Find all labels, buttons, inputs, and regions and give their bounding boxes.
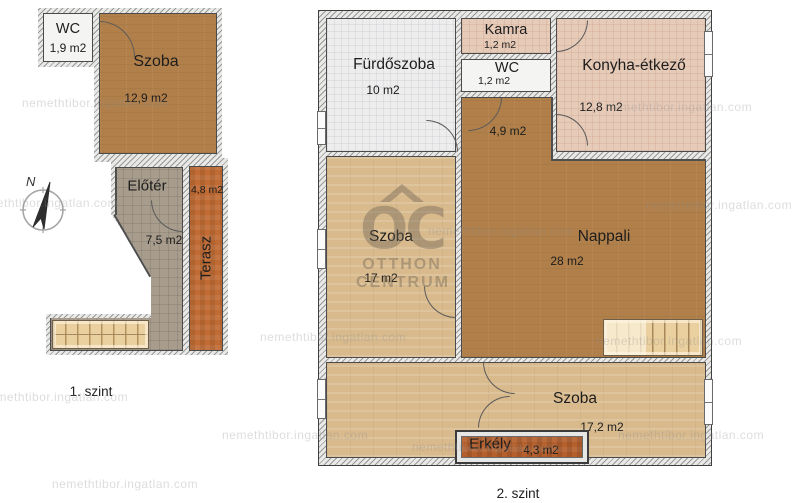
floor2-level-label: 2. szint	[480, 486, 556, 501]
watermark: nemethtibor.ingatlan.com	[52, 477, 198, 491]
wall-line	[551, 159, 706, 161]
stairs-floor2	[603, 319, 703, 356]
room-kamra	[461, 18, 551, 54]
compass-icon: N	[12, 172, 72, 243]
room-erkely	[455, 430, 589, 464]
window	[317, 379, 326, 419]
room-terasz	[189, 166, 223, 351]
wall-line	[115, 167, 117, 215]
floorplan-canvas: WC 1,9 m2 Szoba 12,9 m2 Előtér 7,5 m2 4,…	[0, 0, 800, 503]
wall-line	[551, 97, 553, 160]
floorplan-floor2: Fürdőszoba 10 m2 Kamra 1,2 m2 WC 1,2 m2 …	[318, 10, 712, 466]
room-wc-floor2	[461, 59, 551, 92]
window	[704, 31, 713, 77]
floor1-level-label: 1. szint	[54, 384, 128, 399]
room-szoba-17	[326, 156, 456, 358]
compass-north-label: N	[26, 174, 36, 189]
window	[317, 229, 326, 269]
window	[704, 379, 713, 425]
room-wc-floor1	[43, 13, 93, 62]
stairs-floor1	[52, 320, 149, 349]
window	[317, 111, 326, 145]
